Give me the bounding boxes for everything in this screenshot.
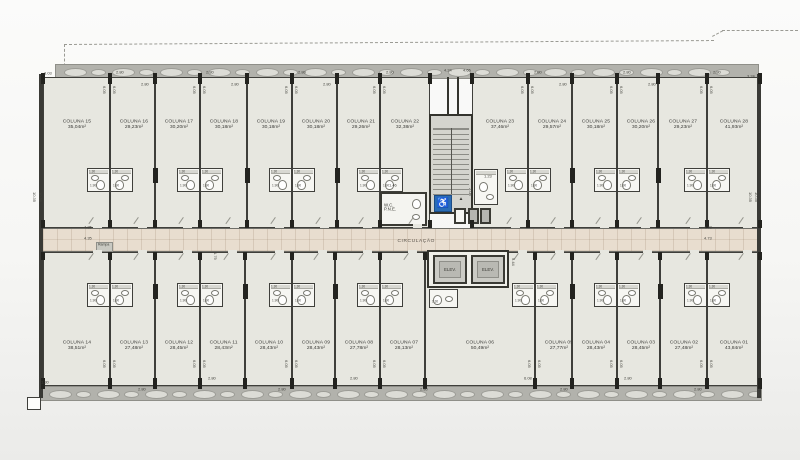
pod-dimension: 1.30 — [271, 285, 277, 288]
wall-pilaster — [615, 73, 619, 84]
dimension-label: 4.73 — [704, 225, 712, 230]
dimension-label: 6.05 — [102, 86, 107, 94]
dimension-label: 6.05 — [112, 86, 117, 94]
wall-pilaster — [108, 252, 112, 260]
unit-label: COLUNA 1730,20m² — [156, 118, 199, 139]
pod-dimension: 1.90 — [295, 299, 301, 302]
wall-pilaster — [658, 378, 662, 389]
pod-dimension: 1.90 — [531, 184, 537, 187]
wall-pilaster — [333, 378, 337, 389]
unit-label: COLUNA 2429,57m² — [529, 118, 571, 139]
unit-label: COLUNA 2337,46m² — [473, 118, 527, 139]
wall-pilaster — [428, 73, 432, 84]
unit-coluna-25: COLUNA 2530,18m² — [572, 77, 617, 228]
wall-pilaster — [758, 73, 762, 84]
bathroom-pod: 1.901.30 — [617, 283, 640, 307]
dimension-label: 10.35 — [32, 192, 37, 202]
unit-door — [600, 250, 609, 254]
pod-dimension: 1.90 — [687, 184, 693, 187]
pod-dimension: 1.90 — [360, 299, 366, 302]
elevator-label: ELEV. — [442, 267, 459, 272]
facade-oval — [193, 390, 216, 399]
bathroom-pod: 1.901.30 — [594, 168, 617, 192]
unit-door — [600, 224, 609, 228]
facade-oval — [76, 391, 91, 398]
bathroom-pod: 1.901.30 — [380, 168, 403, 192]
unit-label: COLUNA 1228,45m² — [156, 339, 199, 360]
unit-area: 28,45m² — [627, 345, 655, 351]
dimension-label: 1.79 — [213, 252, 218, 260]
floor-plan-canvas: COLUNA 1535,04m²COLUNA 1629,23m²COLUNA 1… — [0, 0, 800, 460]
wc-pne-room: W.C.P.N.E. — [380, 192, 427, 226]
pod-dimension: 1.30 — [202, 285, 208, 288]
wall-pilaster — [290, 220, 294, 228]
exterior-wall-right — [757, 74, 761, 398]
unit-area: 30,18m² — [257, 124, 285, 130]
pod-dimension: 1.30 — [507, 170, 513, 173]
dimension-label: 6.05 — [709, 86, 714, 94]
bathroom-pod: 1.901.30 — [200, 168, 223, 192]
bathroom-pod: 1.901.30 — [535, 283, 558, 307]
pod-dimension: 1.30 — [112, 285, 118, 288]
toilet-icon — [96, 295, 105, 305]
pod-dimension: 1.30 — [619, 285, 625, 288]
pod-dimension: 1.30 — [619, 170, 625, 173]
bathroom-pod: 1.901.30 — [110, 168, 133, 192]
dimension-label: 1.23 — [484, 174, 492, 179]
pod-dimension: 1.30 — [112, 170, 118, 173]
wall-pilaster — [335, 73, 339, 84]
toilet-icon — [412, 199, 421, 209]
unit-door — [641, 224, 650, 228]
dimension-label: 6.05 — [699, 360, 704, 368]
unit-label: COLUNA 0328,45m² — [618, 339, 659, 360]
wall-column — [335, 168, 340, 183]
dimension-label: 2.80 — [713, 70, 721, 75]
wall-pilaster — [198, 252, 202, 260]
wall-column — [658, 284, 663, 299]
unit-door — [228, 250, 237, 254]
dimension-label: 6.05 — [382, 86, 387, 94]
unit-door — [518, 250, 527, 254]
pod-dimension: 1.30 — [294, 285, 300, 288]
unit-area: 32,38m² — [391, 124, 419, 130]
toilet-icon — [479, 182, 488, 192]
elevator-label: ELEV. — [480, 267, 497, 272]
dimension-label: 6.05 — [609, 86, 614, 94]
unit-label: COLUNA 2232,38m² — [381, 118, 429, 139]
stair-chase-wall — [447, 77, 449, 115]
sink-icon — [486, 194, 494, 200]
bathroom-pod: 1.901.30 — [269, 283, 292, 307]
wall-pilaster — [153, 252, 157, 260]
dimension-label: 6.05 — [102, 360, 107, 368]
unit-coluna-14: COLUNA 1438,51m² — [43, 252, 110, 386]
facade-oval — [529, 390, 552, 399]
dimension-label: 1.30 — [41, 380, 49, 385]
dimension-label: 2.80 — [206, 70, 214, 75]
dimension-label: 2.80 — [138, 387, 146, 392]
unit-label: COLUNA 0827,78m² — [336, 339, 379, 360]
toilet-icon — [96, 180, 105, 190]
dimension-label: 2.80 — [560, 387, 568, 392]
dimension-label: 4.35 — [84, 225, 92, 230]
unit-label: COLUNA 1438,51m² — [44, 339, 109, 360]
dimension-label: 10.35 — [754, 192, 759, 202]
facade-oval — [475, 69, 490, 76]
facade-oval — [64, 68, 87, 77]
unit-coluna-11: COLUNA 1128,43m² — [200, 252, 245, 386]
unit-area: 28,13m² — [390, 345, 418, 351]
facade-oval — [160, 68, 183, 77]
wall-pilaster — [333, 252, 337, 260]
unit-area: 28,43m² — [582, 345, 610, 351]
bathroom-pod: 1.901.30 — [292, 168, 315, 192]
wall-column — [656, 168, 661, 183]
bathroom-pod: 1.901.30 — [707, 168, 730, 192]
wall-pilaster — [705, 252, 709, 260]
unit-door — [690, 250, 699, 254]
dimension-label: 6.05 — [202, 360, 207, 368]
unit-door — [690, 224, 699, 228]
pod-dimension: 1.30 — [382, 285, 388, 288]
facade-oval — [721, 390, 744, 399]
dimension-label: 3.24 — [747, 74, 755, 79]
wall-pilaster — [243, 378, 247, 389]
unit-door — [183, 250, 192, 254]
bathroom-pod: 1.901.30 — [269, 168, 292, 192]
unit-door — [643, 250, 652, 254]
unit-area: 27,78m² — [345, 345, 373, 351]
bathroom-pod: 1.901.30 — [505, 168, 528, 192]
dimension-label: 6.05 — [294, 86, 299, 94]
pod-dimension: 1.30 — [179, 285, 185, 288]
wall-pilaster — [615, 378, 619, 389]
unit-area: 30,18m² — [302, 124, 330, 130]
facade-oval — [364, 391, 379, 398]
pod-dimension: 1.90 — [383, 299, 389, 302]
unit-area: 27,77m² — [545, 345, 573, 351]
bathroom-pod: 1.901.30 — [594, 283, 617, 307]
unit-label: COLUNA 2030,18m² — [293, 118, 336, 139]
wall-pilaster — [378, 378, 382, 389]
bathroom-pod: 1.901.30 — [707, 283, 730, 307]
pod-dimension: 1.30 — [432, 300, 438, 303]
wall-column — [153, 284, 158, 299]
elevator-cab: ELEV. — [471, 255, 505, 284]
wall-pilaster — [335, 220, 339, 228]
facade-oval — [544, 68, 567, 77]
unit-area: 50,49m² — [466, 345, 494, 351]
pod-dimension: 1.30 — [596, 170, 602, 173]
unit-area: 30,18m² — [210, 124, 238, 130]
unit-door — [318, 250, 327, 254]
bathroom-pod: 1.901.30 — [684, 168, 707, 192]
unit-coluna-27: COLUNA 2729,23m² — [658, 77, 707, 228]
unit-door — [138, 250, 147, 254]
facade-oval — [220, 391, 235, 398]
unit-area: 29,26m² — [347, 124, 375, 130]
unit-coluna-17: COLUNA 1730,20m² — [155, 77, 200, 228]
dimension-label: 10.35 — [38, 192, 43, 202]
pod-dimension: 1.30 — [382, 170, 388, 173]
wall-pilaster — [615, 220, 619, 228]
facade-oval — [139, 69, 154, 76]
unit-door — [275, 250, 284, 254]
dimension-label: 2.80 — [208, 376, 216, 381]
wall-pilaster — [290, 252, 294, 260]
pod-dimension: 1.90 — [710, 299, 716, 302]
pod-dimension: 1.30 — [709, 285, 715, 288]
wall-pilaster — [656, 73, 660, 84]
dimension-label: 4.24 — [444, 68, 452, 73]
dimension-label: 6.05 — [202, 86, 207, 94]
facade-oval — [91, 69, 106, 76]
unit-label: COLUNA 2841,93m² — [708, 118, 759, 139]
sink-icon — [445, 296, 453, 302]
dimension-label: 6.05 — [537, 360, 542, 368]
bathroom-pod: 1.901.30 — [110, 283, 133, 307]
wall-pilaster — [570, 378, 574, 389]
unit-door — [408, 250, 417, 254]
pod-dimension: 1.30 — [89, 170, 95, 173]
facade-oval — [496, 68, 519, 77]
pod-dimension: 1.30 — [686, 285, 692, 288]
wall-pilaster — [570, 220, 574, 228]
dimension-label: 2.80 — [141, 82, 149, 87]
unit-label: COLUNA 0527,77m² — [536, 339, 571, 360]
dimension-label: 6.05 — [192, 360, 197, 368]
unit-door — [363, 250, 372, 254]
up-arrow-icon: ▲ — [459, 196, 464, 201]
bathroom-pod: 1.901.30 — [87, 168, 110, 192]
pod-dimension: 1.90 — [597, 184, 603, 187]
dimension-label: 6.05 — [284, 86, 289, 94]
toilet-icon — [693, 295, 702, 305]
unit-label: COLUNA 1535,04m² — [44, 118, 109, 139]
wall-pilaster — [615, 252, 619, 260]
wall-pilaster — [243, 252, 247, 260]
unit-door — [138, 224, 147, 228]
pod-dimension: 1.90 — [203, 299, 209, 302]
unit-door — [93, 250, 102, 254]
unit-coluna-24: COLUNA 2429,57m² — [528, 77, 572, 228]
facade-oval — [145, 390, 168, 399]
pod-dimension: 1.90 — [295, 184, 301, 187]
wall-pilaster — [153, 378, 157, 389]
bathroom-pod: 1.30 — [429, 289, 458, 308]
bathroom-pod: 1.901.30 — [177, 168, 200, 192]
elevator-cab: ELEV. — [433, 255, 467, 284]
wall-pilaster — [470, 73, 474, 84]
bathroom-pod: 1.901.30 — [380, 283, 403, 307]
unit-area: 28,43m² — [255, 345, 283, 351]
pod-dimension: 1.90 — [90, 299, 96, 302]
wall-pilaster — [153, 73, 157, 84]
dimension-label: 6.05 — [112, 360, 117, 368]
unit-coluna-13: COLUNA 1327,48m² — [110, 252, 155, 386]
unit-label: COLUNA 1629,23m² — [111, 118, 154, 139]
wall-pilaster — [470, 220, 474, 228]
wall-pilaster — [153, 220, 157, 228]
wall-pilaster — [428, 220, 432, 228]
unit-label: COLUNA 0227,48m² — [661, 339, 706, 360]
pod-dimension: 1.30 — [202, 170, 208, 173]
facade-oval — [337, 390, 360, 399]
corridor-label: CIRCULAÇÃO — [397, 238, 434, 243]
pod-dimension: 1.90 — [113, 299, 119, 302]
bathroom-pod: 1.901.30 — [177, 283, 200, 307]
unit-area: 28,43m² — [210, 345, 238, 351]
pod-dimension: 1.90 — [710, 184, 716, 187]
property-line — [722, 30, 798, 31]
wall-pilaster — [378, 73, 382, 84]
wall-pilaster — [705, 378, 709, 389]
unit-label: COLUNA 1128,43m² — [201, 339, 244, 360]
unit-label: COLUNA 1830,18m² — [201, 118, 246, 139]
facade-oval — [385, 390, 408, 399]
wall-pilaster — [758, 252, 762, 260]
unit-label: COLUNA 2630,20m² — [618, 118, 657, 139]
toilet-icon — [603, 295, 612, 305]
unit-label: COLUNA 1930,18m² — [248, 118, 291, 139]
wall-pilaster — [290, 378, 294, 389]
wall-pilaster — [423, 252, 427, 260]
unit-coluna-23: COLUNA 2337,46m² — [472, 77, 528, 228]
wall-pilaster — [533, 252, 537, 260]
facade-oval — [433, 390, 456, 399]
pod-dimension: 1.90 — [538, 299, 544, 302]
facade-oval — [460, 391, 475, 398]
unit-area: 37,46m² — [486, 124, 514, 130]
unit-area: 43,84m² — [719, 345, 747, 351]
dimension-label: 2.80 — [386, 70, 394, 75]
unit-area: 35,04m² — [62, 124, 90, 130]
dimension-label: 6.05 — [619, 86, 624, 94]
unit-area: 27,48m² — [670, 345, 698, 351]
wall-pilaster — [570, 73, 574, 84]
bathroom-pod: 1.901.30 — [528, 168, 551, 192]
unit-area: 30,20m² — [165, 124, 193, 130]
pod-dimension: 1.30 — [179, 170, 185, 173]
dimension-label: 2.80 — [623, 70, 631, 75]
facade-band-bottom — [40, 386, 762, 401]
unit-label: COLUNA 1028,43m² — [246, 339, 291, 360]
unit-door — [363, 224, 372, 228]
dimension-label: 2.80 — [323, 82, 331, 87]
pod-dimension: 1.90 — [180, 184, 186, 187]
facade-oval — [700, 391, 715, 398]
dimension-label: 2.80 — [420, 387, 428, 392]
property-line — [64, 40, 714, 45]
unit-area: 38,51m² — [62, 345, 90, 351]
facade-oval — [241, 390, 264, 399]
bathroom-pod: 1.901.30 — [684, 283, 707, 307]
facade-oval — [625, 390, 648, 399]
toilet-icon — [366, 295, 375, 305]
facade-oval — [316, 391, 331, 398]
facade-oval — [556, 391, 571, 398]
bathroom-pod: 1.901.30 — [200, 283, 223, 307]
facade-oval — [97, 390, 120, 399]
wall-column — [570, 284, 575, 299]
dimension-label: 2.80 — [624, 376, 632, 381]
dimension-label: 2.80 — [298, 70, 306, 75]
pod-dimension: 1.90 — [360, 184, 366, 187]
dimension-label: 4.73 — [704, 236, 712, 241]
pod-dimension: 1.30 — [294, 170, 300, 173]
stair-divider — [451, 128, 452, 194]
dimension-label: 6.05 — [709, 360, 714, 368]
unit-door — [275, 224, 284, 228]
pod-dimension: 1.90 — [113, 184, 119, 187]
wall-pilaster — [378, 220, 382, 228]
unit-label: COLUNA 2729,23m² — [659, 118, 706, 139]
facade-oval — [289, 390, 312, 399]
unit-area: 27,48m² — [120, 345, 148, 351]
toilet-icon — [278, 295, 287, 305]
wall-column — [243, 284, 248, 299]
dimension-label: 6.05 — [382, 360, 387, 368]
wall-pilaster — [41, 252, 45, 260]
facade-oval — [268, 391, 283, 398]
unit-area: 29,23m² — [668, 124, 696, 130]
dimension-label: 6.05 — [530, 86, 535, 94]
unit-coluna-16: COLUNA 1629,23m² — [110, 77, 155, 228]
wall-pilaster — [245, 220, 249, 228]
unit-label: COLUNA 0928,43m² — [293, 339, 334, 360]
dimension-label: 6.05 — [294, 360, 299, 368]
pod-dimension: 1.30 — [359, 170, 365, 173]
facade-oval — [673, 390, 696, 399]
bathroom-pod: 1.901.30 — [512, 283, 535, 307]
ramp-label: Rampa — [98, 243, 109, 247]
wall-pilaster — [658, 252, 662, 260]
unit-area: 29,57m² — [538, 124, 566, 130]
pod-dimension: 1.30 — [514, 285, 520, 288]
unit-coluna-18: COLUNA 1830,18m² — [200, 77, 247, 228]
facade-oval — [124, 391, 139, 398]
bathroom-pod: 1.901.30 — [617, 168, 640, 192]
wall-pilaster — [108, 220, 112, 228]
dimension-label: 2.80 — [694, 387, 702, 392]
wheelchair-icon: ♿ — [437, 198, 449, 209]
wall-column — [333, 284, 338, 299]
pod-dimension: 1.30 — [89, 285, 95, 288]
toilet-icon — [366, 180, 375, 190]
unit-label: COLUNA 2129,26m² — [338, 118, 379, 139]
wc-pne-label: W.C.P.N.E. — [384, 203, 396, 212]
dimension-label: 6.05 — [192, 86, 197, 94]
unit-door — [555, 250, 564, 254]
pod-dimension: 1.90 — [272, 184, 278, 187]
facade-oval — [667, 69, 682, 76]
unit-label: COLUNA 0728,13m² — [381, 339, 424, 360]
unit-coluna-07: COLUNA 0728,13m² — [380, 252, 425, 386]
facade-oval — [604, 391, 619, 398]
toilet-icon — [278, 180, 287, 190]
facade-oval — [304, 68, 327, 77]
wall-column — [245, 168, 250, 183]
unit-door — [413, 224, 422, 228]
wall-pilaster — [198, 73, 202, 84]
toilet-icon — [186, 295, 195, 305]
facade-oval — [256, 68, 279, 77]
unit-label: COLUNA 1327,48m² — [111, 339, 154, 360]
facade-oval — [592, 68, 615, 77]
dimension-label: 2.08 — [468, 188, 473, 196]
dimension-label: 6.05 — [372, 360, 377, 368]
